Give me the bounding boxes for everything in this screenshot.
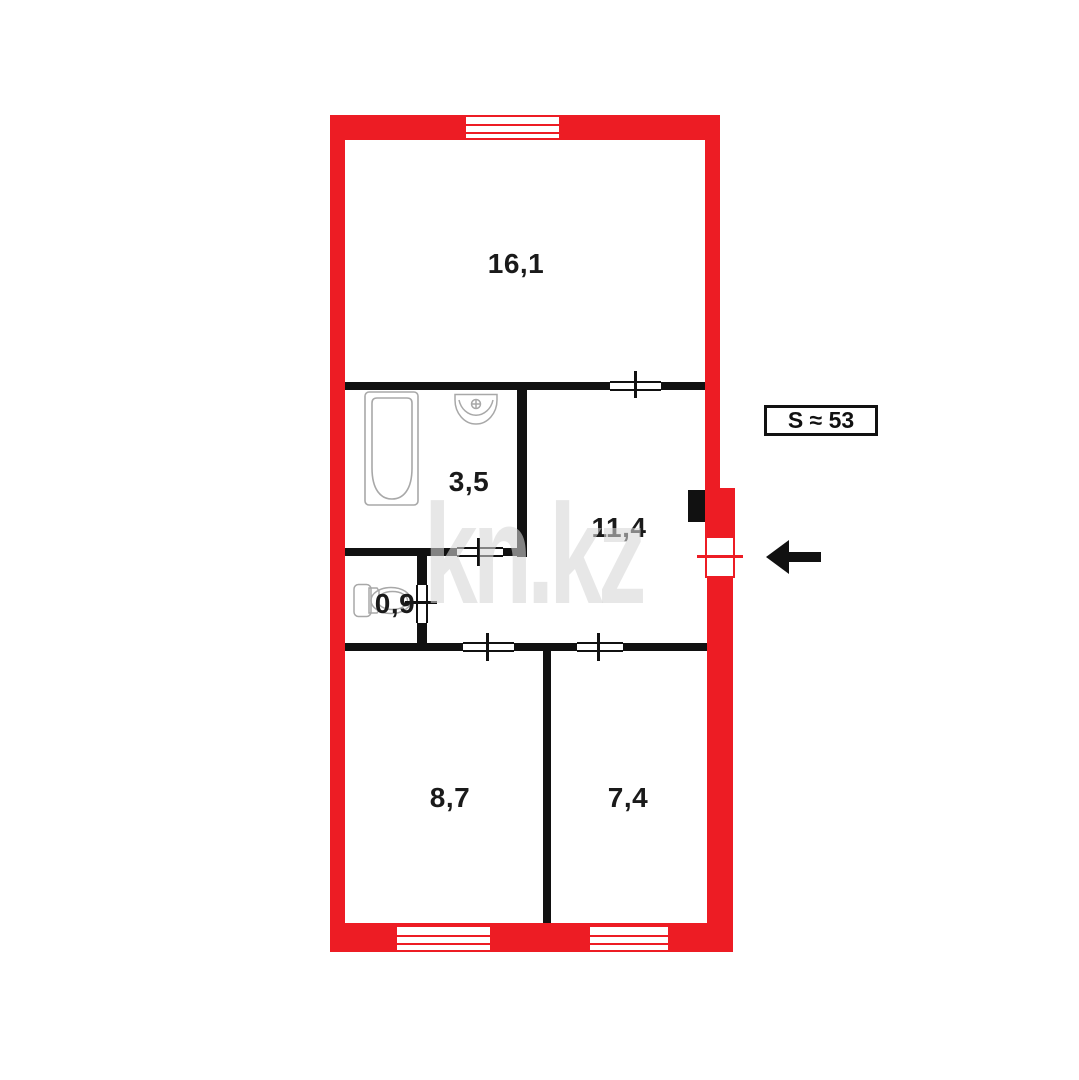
- window-mullion: [590, 935, 668, 937]
- exterior-wall-right-lower: [707, 578, 733, 952]
- window-mullion: [397, 943, 490, 945]
- window-bottom-right: [590, 925, 668, 952]
- room-label-hall: 11,4: [592, 512, 647, 544]
- door-room-7-4: [577, 642, 623, 652]
- entry-door-threshold: [697, 555, 743, 558]
- door-tick: [486, 633, 489, 661]
- exterior-wall-bottom: [330, 923, 733, 952]
- room-label-bathroom: 3,5: [449, 466, 489, 498]
- window-mullion: [397, 935, 490, 937]
- floor-plan: S ≈ 53 16,1 3,5 11,4 0,9 8,7 7,4 kn.kz: [0, 0, 1079, 1080]
- window-top: [466, 115, 559, 140]
- interior-wall-bottom-rooms-left: [345, 643, 463, 651]
- interior-wall-wc-right-upper: [417, 548, 427, 585]
- door-tick: [634, 371, 637, 398]
- entrance-arrow-icon: [762, 537, 824, 582]
- exterior-wall-left: [330, 115, 345, 952]
- door-tick: [477, 538, 480, 566]
- window-mullion: [466, 132, 559, 134]
- exterior-wall-entry-bump: [705, 488, 735, 536]
- window-mullion: [590, 943, 668, 945]
- door-wc: [416, 585, 428, 623]
- bathtub: [364, 391, 420, 507]
- door-tick: [597, 633, 600, 661]
- vent-shaft: [688, 490, 705, 522]
- window-mullion: [466, 124, 559, 126]
- interior-wall-hall-top-left: [345, 382, 610, 390]
- total-area-box: S ≈ 53: [764, 405, 878, 436]
- room-label-wc: 0,9: [375, 588, 415, 620]
- room-label-living: 16,1: [488, 248, 545, 280]
- door-bathroom: [457, 547, 503, 557]
- interior-wall-hall-top-right: [661, 382, 705, 390]
- exterior-wall-right-upper: [705, 115, 720, 488]
- room-label-bedroom-right: 7,4: [608, 782, 648, 814]
- window-bottom-left: [397, 925, 490, 952]
- sink: [453, 393, 499, 427]
- room-label-bedroom-left: 8,7: [430, 782, 470, 814]
- interior-wall-bottom-rooms-mid: [514, 643, 577, 651]
- interior-wall-bath-bottom-right: [503, 548, 527, 556]
- interior-wall-bedroom-divider: [543, 651, 551, 923]
- interior-wall-bath-bottom-left: [345, 548, 457, 556]
- total-area-label: S ≈ 53: [788, 407, 854, 434]
- interior-wall-bottom-rooms-right: [623, 643, 707, 651]
- interior-wall-bath-hall: [517, 382, 527, 557]
